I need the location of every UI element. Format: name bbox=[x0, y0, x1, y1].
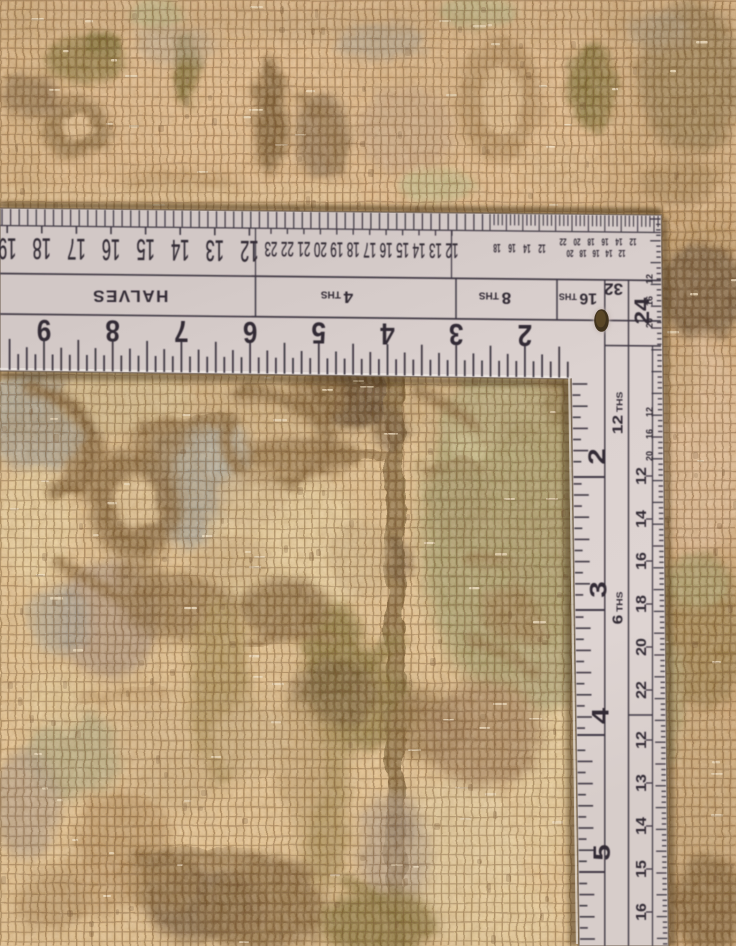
svg-text:20: 20 bbox=[645, 451, 655, 461]
svg-text:14: 14 bbox=[605, 248, 612, 260]
svg-text:14: 14 bbox=[413, 238, 426, 262]
svg-text:18: 18 bbox=[493, 240, 501, 254]
svg-text:HALVES: HALVES bbox=[92, 286, 169, 305]
svg-text:18: 18 bbox=[33, 231, 51, 264]
svg-text:14: 14 bbox=[615, 236, 622, 248]
svg-text:12: 12 bbox=[538, 241, 545, 255]
svg-text:23: 23 bbox=[265, 237, 278, 261]
svg-text:19: 19 bbox=[0, 231, 16, 264]
svg-text:16: 16 bbox=[380, 238, 393, 262]
svg-text:22: 22 bbox=[281, 237, 294, 261]
svg-text:18: 18 bbox=[587, 236, 594, 248]
svg-text:12: 12 bbox=[618, 248, 625, 260]
svg-text:17: 17 bbox=[67, 232, 85, 265]
svg-text:16: 16 bbox=[102, 232, 120, 265]
svg-text:12: 12 bbox=[240, 233, 258, 266]
svg-text:14: 14 bbox=[171, 233, 189, 266]
svg-text:20: 20 bbox=[645, 318, 655, 328]
svg-text:17: 17 bbox=[363, 238, 376, 262]
svg-text:20: 20 bbox=[566, 248, 573, 260]
svg-text:19: 19 bbox=[330, 238, 343, 262]
svg-text:20: 20 bbox=[573, 236, 580, 248]
svg-text:20: 20 bbox=[314, 237, 327, 261]
svg-text:15: 15 bbox=[136, 232, 154, 265]
svg-text:21: 21 bbox=[297, 237, 310, 261]
svg-text:18: 18 bbox=[347, 238, 360, 262]
svg-text:12: 12 bbox=[629, 236, 636, 248]
svg-text:18: 18 bbox=[579, 248, 586, 260]
svg-text:12: 12 bbox=[645, 274, 655, 284]
svg-text:15: 15 bbox=[396, 238, 409, 262]
svg-text:16: 16 bbox=[592, 248, 599, 260]
svg-text:5: 5 bbox=[589, 844, 616, 860]
svg-text:12: 12 bbox=[445, 239, 458, 263]
svg-text:4: 4 bbox=[587, 708, 614, 724]
svg-text:32: 32 bbox=[604, 279, 623, 298]
svg-text:16: 16 bbox=[601, 236, 608, 248]
svg-text:13: 13 bbox=[206, 233, 224, 266]
svg-text:16: 16 bbox=[645, 296, 655, 306]
svg-text:13: 13 bbox=[429, 239, 442, 263]
svg-text:14: 14 bbox=[523, 241, 531, 255]
svg-text:16: 16 bbox=[508, 240, 516, 254]
svg-text:22: 22 bbox=[559, 236, 566, 248]
